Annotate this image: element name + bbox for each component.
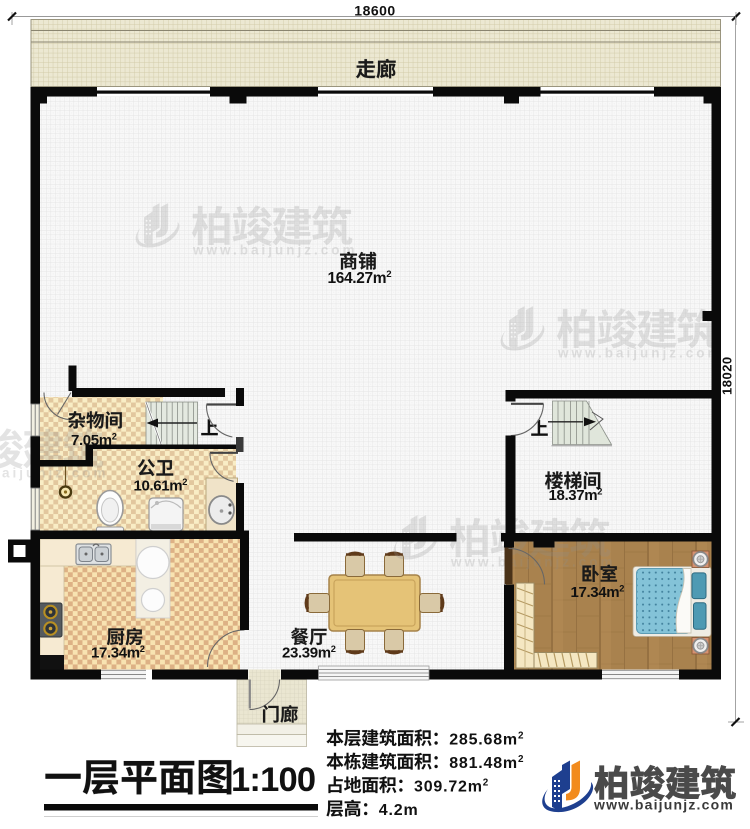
svg-text:18020: 18020 — [720, 356, 735, 395]
svg-text:23.39m2: 23.39m2 — [282, 644, 336, 662]
svg-text:7.05m2: 7.05m2 — [71, 431, 117, 449]
svg-text:285.68m2: 285.68m2 — [449, 730, 524, 748]
svg-text:17.34m2: 17.34m2 — [571, 583, 625, 601]
svg-text:881.48m2: 881.48m2 — [449, 754, 524, 772]
svg-text:10.61m2: 10.61m2 — [134, 477, 188, 495]
svg-text:www.baijunjz.com: www.baijunjz.com — [192, 243, 358, 258]
svg-text:17.34m2: 17.34m2 — [91, 644, 145, 662]
svg-text:18.37m2: 18.37m2 — [549, 486, 603, 504]
svg-text:4.2m: 4.2m — [379, 802, 419, 819]
svg-text:164.27m2: 164.27m2 — [328, 269, 392, 287]
svg-text:www.baijunjz.com: www.baijunjz.com — [593, 797, 734, 813]
svg-text:www.baijunjz.com: www.baijunjz.com — [557, 346, 723, 361]
svg-text:www.baijunjz.com: www.baijunjz.com — [0, 466, 109, 481]
svg-text:1:100: 1:100 — [231, 761, 315, 799]
svg-text:309.72m2: 309.72m2 — [414, 777, 489, 795]
svg-text:18600: 18600 — [354, 3, 395, 19]
